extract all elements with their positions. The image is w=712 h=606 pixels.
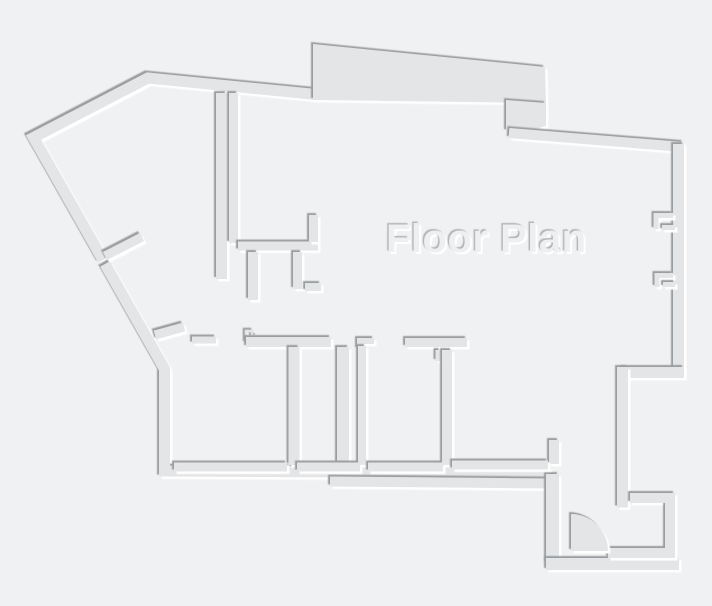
wall-top-protrusion: [313, 44, 546, 103]
door-swing: [571, 514, 608, 551]
wall-diag-door-jamb-a: [105, 237, 142, 256]
floor-plan-drawing: [0, 0, 712, 606]
wall-diag-door-jamb-b: [155, 327, 184, 335]
wall-top-wall-right: [509, 133, 683, 147]
wall-outer-wall-lower-left: [105, 264, 550, 473]
floor-plan-title: Floor Plan: [386, 217, 587, 262]
floor-plan-canvas: Floor Plan: [0, 0, 712, 606]
wall-outer-wall-upper-left: [34, 78, 317, 260]
wall-bottom-outer-band: [330, 482, 552, 484]
